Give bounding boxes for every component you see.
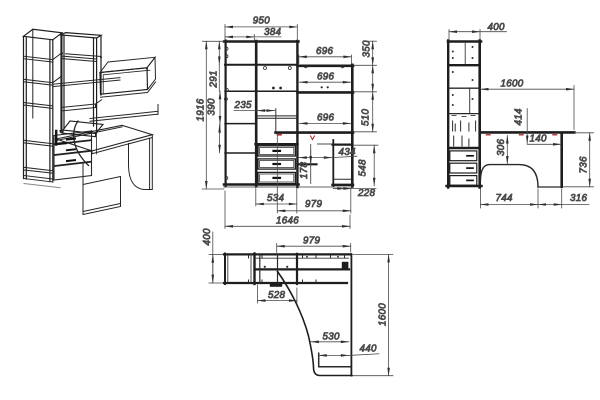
- svg-text:400: 400: [202, 228, 213, 245]
- svg-text:291: 291: [209, 70, 220, 88]
- svg-text:434: 434: [339, 147, 356, 158]
- svg-text:350: 350: [362, 40, 373, 57]
- svg-text:306: 306: [496, 139, 507, 156]
- svg-text:228: 228: [357, 188, 375, 199]
- svg-text:979: 979: [305, 199, 322, 210]
- svg-text:744: 744: [496, 193, 513, 204]
- svg-text:440: 440: [360, 344, 377, 355]
- svg-text:950: 950: [253, 15, 270, 26]
- svg-text:1646: 1646: [276, 215, 299, 226]
- svg-text:390: 390: [207, 98, 218, 115]
- svg-text:1600: 1600: [501, 78, 524, 89]
- svg-text:235: 235: [234, 100, 252, 111]
- svg-text:1916: 1916: [196, 98, 207, 121]
- svg-text:979: 979: [303, 236, 320, 247]
- svg-text:178: 178: [299, 162, 310, 179]
- svg-text:510: 510: [361, 109, 372, 126]
- svg-text:316: 316: [570, 193, 587, 204]
- svg-text:140: 140: [530, 134, 547, 145]
- svg-text:736: 736: [579, 156, 590, 173]
- svg-text:414: 414: [514, 108, 525, 125]
- svg-text:534: 534: [267, 193, 284, 204]
- svg-text:548: 548: [358, 159, 369, 176]
- svg-text:1600: 1600: [377, 303, 388, 326]
- svg-text:696: 696: [317, 113, 334, 124]
- svg-text:384: 384: [264, 27, 281, 38]
- svg-text:530: 530: [323, 332, 340, 343]
- svg-text:696: 696: [317, 72, 334, 83]
- svg-text:696: 696: [316, 46, 333, 57]
- svg-text:400: 400: [488, 22, 505, 33]
- svg-text:528: 528: [268, 290, 285, 301]
